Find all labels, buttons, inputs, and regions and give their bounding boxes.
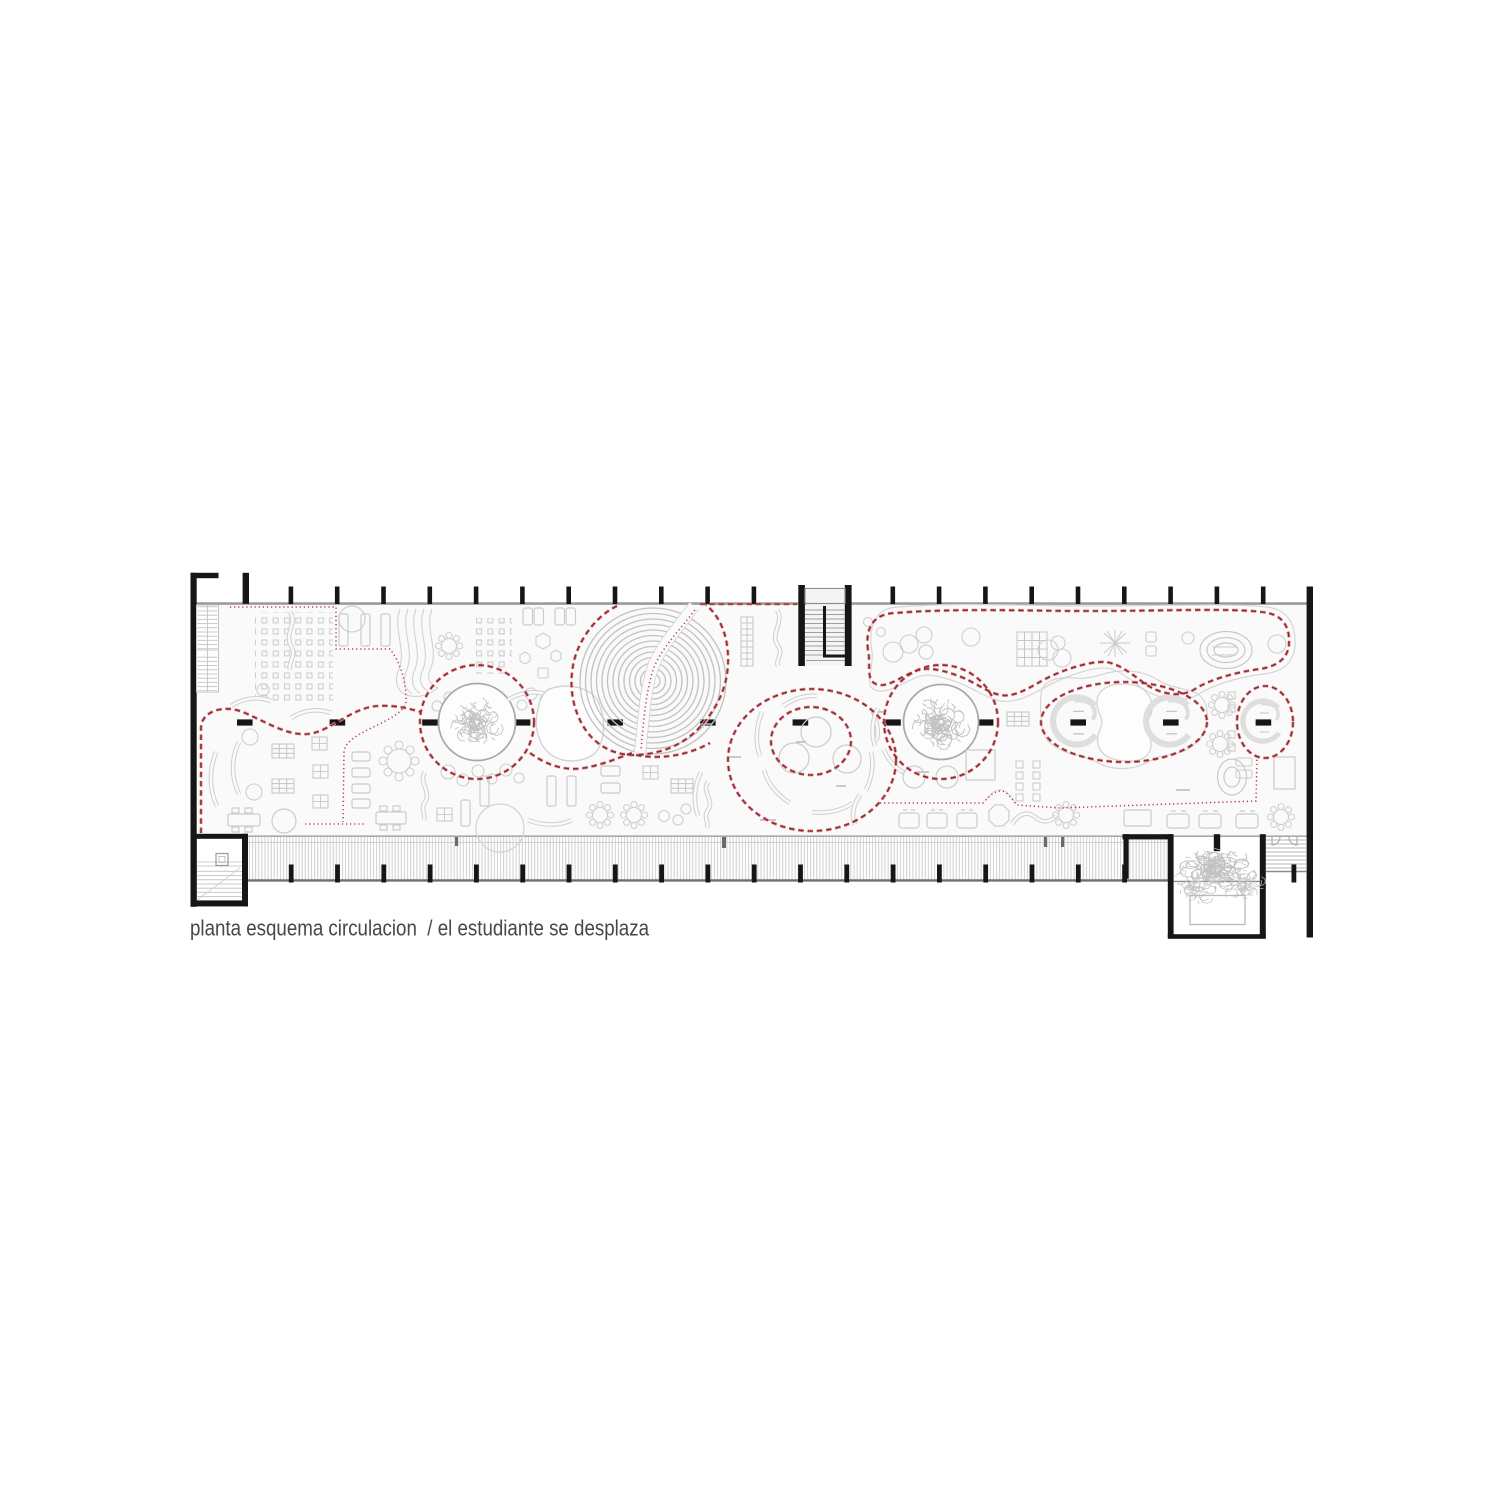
- svg-text:planta esquema circulacion /: planta esquema circulacion / el estudian…: [190, 916, 650, 941]
